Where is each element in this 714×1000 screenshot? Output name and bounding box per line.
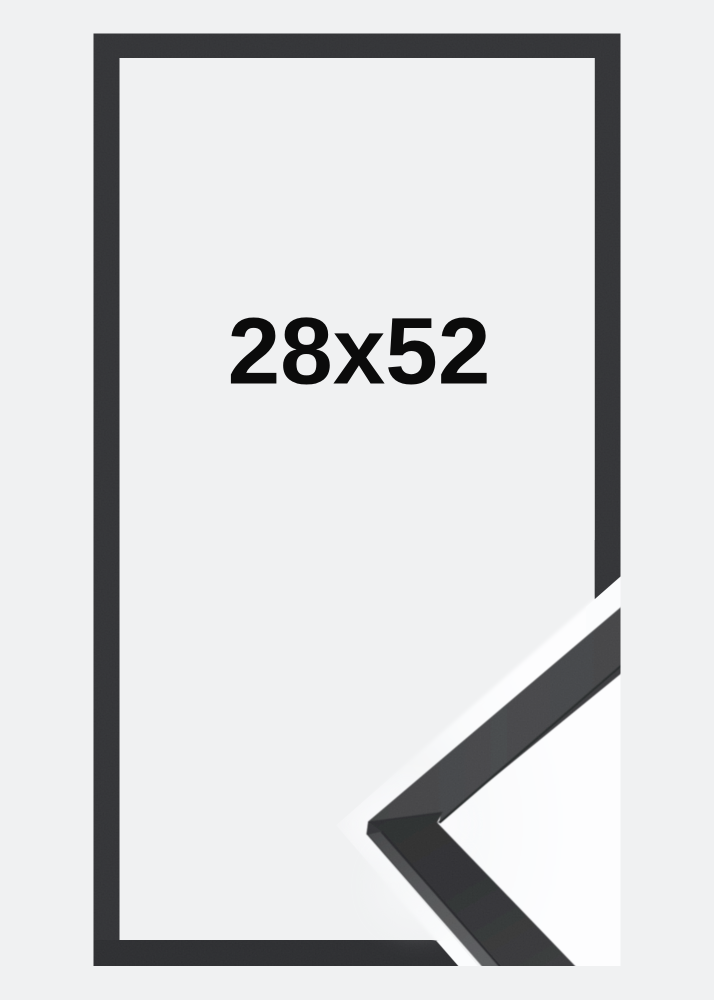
svg-text:28x52: 28x52 [228, 299, 491, 405]
